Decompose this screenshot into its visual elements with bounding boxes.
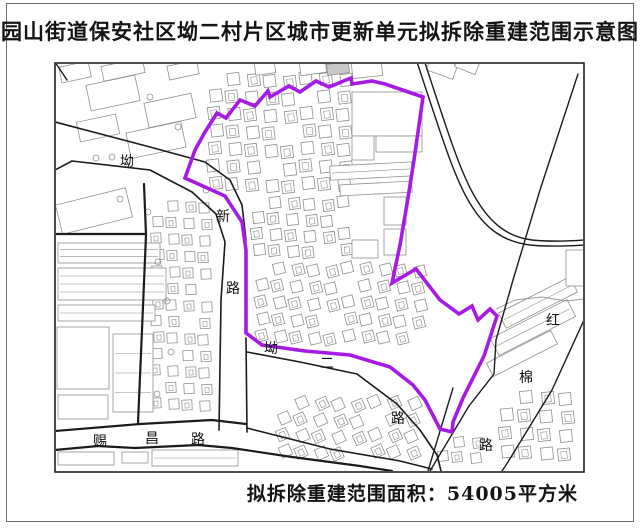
village-house [166,217,177,228]
village-house [305,315,318,328]
village-house [301,141,314,154]
building [57,327,109,389]
village-house [291,314,304,327]
road-label: 路 [226,281,240,297]
village-house [169,234,180,245]
village-house [317,177,330,190]
village-house [517,409,530,422]
building [566,250,584,286]
village-house [338,91,351,104]
village-house [561,411,574,424]
road-label: 昌 [145,431,159,447]
village-house [268,244,280,256]
village-house [339,126,352,139]
village-house [186,202,197,213]
village-house [273,296,286,309]
village-house [289,331,302,344]
village-house [302,246,314,258]
village-house [501,445,514,458]
village-house [281,180,294,193]
village-house [306,214,318,226]
village-house [375,297,388,310]
road-label: 新 [216,209,230,225]
village-house [208,141,221,154]
village-house [256,278,269,291]
village-house [336,108,349,121]
building [58,268,166,300]
village-house [184,383,195,394]
village-house [540,447,553,460]
village-house [257,312,270,325]
road-label: 路 [391,411,405,427]
village-house [287,245,299,257]
village-house [253,243,265,255]
village-house [308,332,321,345]
village-house [558,392,571,405]
village-house [323,333,336,346]
village-house [290,280,303,293]
village-house [324,282,337,295]
village-house [500,408,513,421]
village-house [153,216,164,227]
village-house [337,195,349,207]
village-house [182,400,193,411]
village-house [280,145,293,158]
village-house [263,74,276,87]
village-house [378,314,391,327]
road-label: 赐 [93,434,107,450]
village-house [361,296,374,309]
village-house [243,108,256,121]
village-house [327,299,340,312]
road-label: 红 [546,313,560,329]
village-house [246,126,259,139]
village-house [270,279,283,292]
village-house [318,125,331,138]
village-house [393,315,406,328]
village-house [244,143,257,156]
village-house [519,390,532,403]
village-house [322,199,334,211]
village-house [288,297,301,310]
village-house [185,251,196,262]
village-house [198,252,209,263]
village-house [396,332,409,345]
village-house [262,127,275,140]
village-house [299,159,312,172]
village-house [317,90,330,103]
village-house [264,109,277,122]
village-house [202,384,213,395]
village-house [267,212,279,224]
village-house [201,351,212,362]
village-house [454,437,465,448]
village-house [169,316,180,327]
village-house [183,350,194,361]
village-house [200,318,211,329]
village-house [167,333,178,344]
village-house [362,330,375,343]
village-house [209,176,222,189]
village-house [557,448,570,461]
building [58,452,114,465]
building [58,395,108,419]
village-house [559,429,572,442]
village-house [202,302,213,313]
village-house [200,401,211,412]
village-house [307,298,320,311]
village-house [539,410,552,423]
village-house [397,281,410,294]
village-house [265,144,278,157]
village-house [309,281,322,294]
village-house [225,90,238,103]
village-house [254,295,267,308]
village-house [201,269,212,280]
village-house [541,391,554,404]
village-house [269,196,281,208]
village-house [185,334,196,345]
village-house [226,125,239,138]
village-house [183,268,194,279]
village-house [167,250,178,261]
village-house [210,124,223,137]
road-label: 棉 [519,369,533,386]
village-house [151,233,162,244]
village-house [292,263,305,276]
village-house [227,160,240,173]
village-house [154,332,165,343]
village-house [271,313,284,326]
village-house [247,161,260,174]
village-house [266,179,279,192]
village-house [412,316,425,329]
village-house [303,124,316,137]
building [152,450,238,466]
village-house [170,267,181,278]
village-house [229,142,242,155]
village-house [320,215,332,227]
village-house [377,280,390,293]
village-house [342,329,355,342]
village-house [304,230,316,242]
village-house [302,176,315,189]
village-house [284,229,296,241]
village-house [245,178,258,191]
map-canvas: 坳新路赐昌路坳二路红棉路 [0,0,640,529]
village-house [452,452,463,463]
building [122,452,148,463]
village-house [358,279,371,292]
village-house [250,227,262,239]
building [352,240,378,258]
village-house [411,282,424,295]
village-house [209,89,222,102]
village-house [379,263,392,276]
village-house [272,262,285,275]
road-label: 坳 [120,154,134,170]
building [58,305,155,321]
village-house [306,264,319,277]
village-house [300,106,313,119]
village-house [321,142,334,155]
village-house [186,284,197,295]
road-label: 路 [479,438,493,454]
village-house [202,219,213,230]
building [352,92,422,136]
building [113,334,153,412]
village-house [320,107,333,120]
village-house [283,163,296,176]
village-house [270,228,282,240]
village-house [186,367,197,378]
village-house [284,110,297,123]
road-label: 二 [320,356,334,372]
village-house [498,426,511,439]
village-house [168,283,179,294]
village-house [341,295,354,308]
village-house [288,197,300,209]
village-house [184,218,195,229]
village-house [252,211,264,223]
village-house [166,300,177,311]
village-house [303,198,315,210]
village-house [360,262,373,275]
village-house [414,299,427,312]
village-house [341,243,353,255]
village-house [168,366,179,377]
village-house [344,312,357,325]
village-house [199,203,210,214]
village-house [198,335,209,346]
village-house [323,231,335,243]
village-house [340,261,353,274]
village-house [395,298,408,311]
village-house [200,236,211,247]
village-house [376,331,389,344]
village-house [227,72,240,85]
schematic-map-page: 园山街道保安社区坳二村片区城市更新单元拟拆除重建范围示意图 坳新路赐昌路坳二路红… [0,0,640,529]
village-house [169,399,180,410]
village-house [518,446,531,459]
village-house [359,313,372,326]
village-house [166,382,177,393]
village-house [337,143,350,156]
village-house [537,428,550,441]
village-house [326,265,339,278]
village-house [286,213,298,225]
building [352,136,374,160]
village-house [281,93,294,106]
road-label: 路 [191,432,205,448]
village-house [338,227,350,239]
village-house [471,453,482,464]
road-label: 坳 [264,341,278,357]
village-house [182,235,193,246]
village-house [184,301,195,312]
village-house [199,368,210,379]
village-house [168,201,179,212]
area-caption: 拟拆除重建范围面积：54005平方米 [247,479,578,506]
